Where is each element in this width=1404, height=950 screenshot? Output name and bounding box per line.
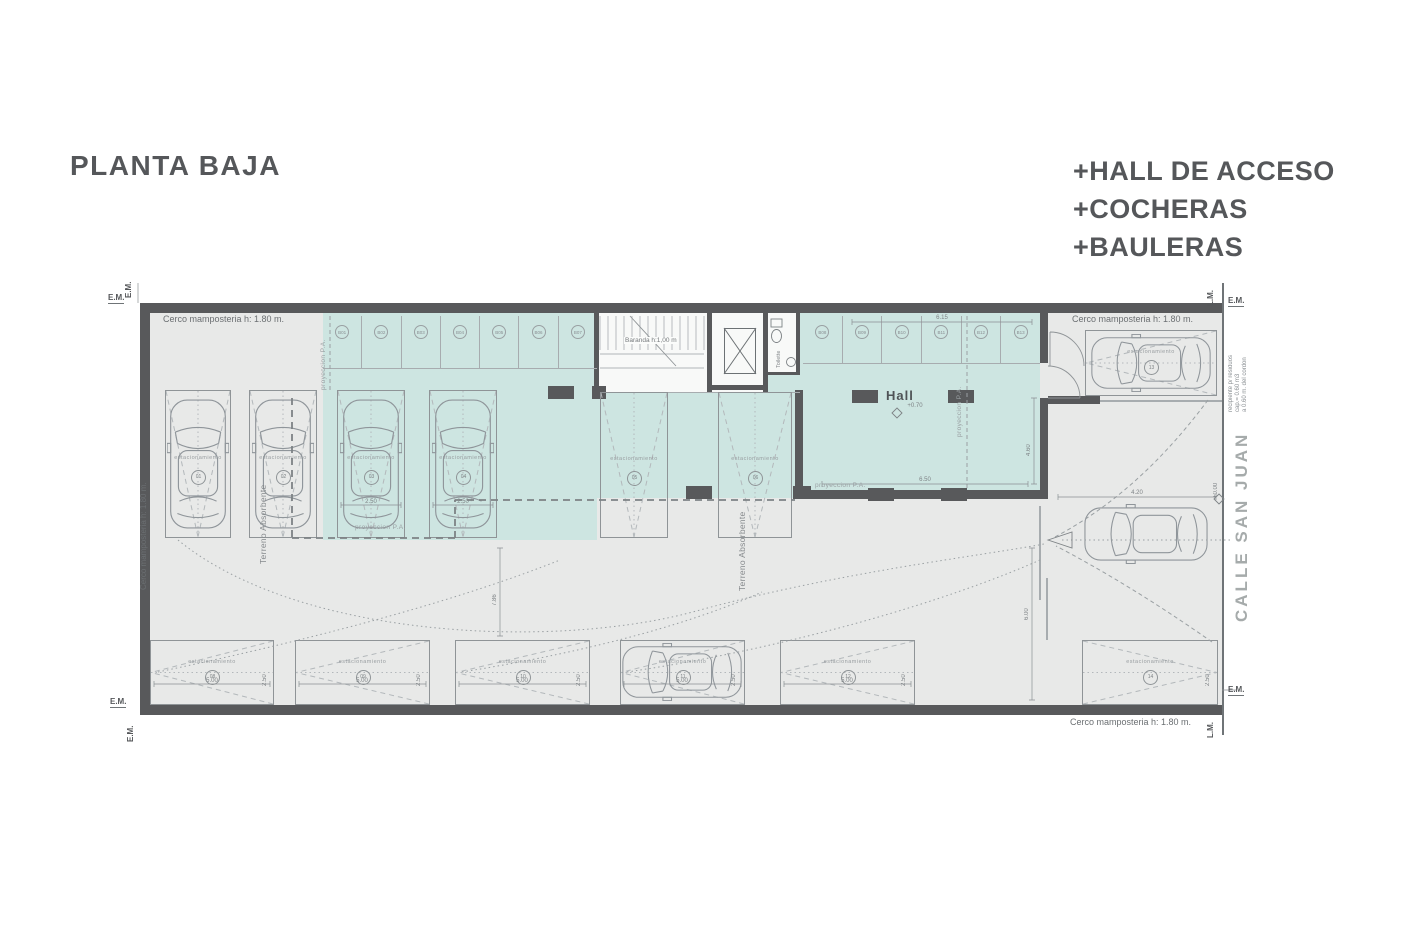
waste-bin-note: recipiente p/ residuos cap.= 0.60 m3 a 0… bbox=[1228, 312, 1249, 412]
dim-2-50-v: 2.50 bbox=[901, 658, 907, 686]
line-bauleras-left-bottom bbox=[323, 368, 597, 369]
program-item-cocheras: +COCHERAS bbox=[1073, 190, 1335, 228]
baulera-stall: B04 bbox=[441, 316, 480, 368]
lm-marker: L.M. bbox=[1206, 280, 1215, 306]
car-top-view-street bbox=[1082, 504, 1210, 564]
wall-elevator-right bbox=[763, 313, 768, 392]
em-marker: E.M. bbox=[124, 272, 133, 298]
dim-6-15: 6.15 bbox=[936, 315, 948, 321]
em-marker: E.M. bbox=[110, 697, 126, 708]
floor-plan-canvas: PLANTA BAJA +HALL DE ACCESO +COCHERAS +B… bbox=[0, 0, 1404, 950]
waste-bin-note-line: a 0.60 m. del cordon bbox=[1242, 312, 1249, 412]
baulera-number: B13 bbox=[1014, 325, 1028, 339]
baulera-number: B10 bbox=[895, 325, 909, 339]
wall-hall-right-upper bbox=[1040, 313, 1048, 363]
column bbox=[868, 488, 894, 501]
program-item-hall: +HALL DE ACCESO bbox=[1073, 152, 1335, 190]
stairs-room bbox=[599, 313, 707, 392]
dim-2-50-v: 2.50 bbox=[416, 658, 422, 686]
parking-spot-label: estacionamiento bbox=[456, 659, 589, 665]
car-top-view bbox=[620, 643, 744, 701]
program-list: +HALL DE ACCESO +COCHERAS +BAULERAS bbox=[1073, 152, 1335, 266]
baulera-stall: B11 bbox=[922, 316, 962, 363]
baulera-stall: B07 bbox=[559, 316, 597, 368]
line-garage13-bottom bbox=[1100, 400, 1222, 402]
baulera-number: B05 bbox=[492, 325, 506, 339]
dim-4-20: 4.20 bbox=[1131, 490, 1143, 496]
bauleras-right-strip: B08 B09 B10 B11 B12 B13 bbox=[803, 316, 1040, 363]
car-top-view bbox=[340, 397, 402, 531]
baulera-number: B07 bbox=[571, 325, 585, 339]
parking-spot-number: 06 bbox=[748, 471, 763, 486]
waste-bin-note-line: recipiente p/ residuos bbox=[1228, 312, 1235, 412]
proyeccion-label: proyeccion P.A. bbox=[956, 375, 963, 437]
baulera-stall: B08 bbox=[803, 316, 843, 363]
dim-4-60: 4.60 bbox=[1026, 428, 1032, 456]
dim-5-00: 5.00 bbox=[841, 678, 853, 684]
fence-label-left: Cerco mamposteria h: 1.80 m. bbox=[139, 420, 148, 590]
baulera-number: B03 bbox=[414, 325, 428, 339]
fence-label-top-left: Cerco mamposteria h: 1.80 m. bbox=[163, 314, 284, 324]
baulera-stall: B09 bbox=[843, 316, 883, 363]
parking-spot-14: estacionamiento 14 bbox=[1082, 640, 1218, 705]
dim-7-86: 7.86 bbox=[492, 578, 498, 606]
wall-hall-right-lower bbox=[1040, 398, 1048, 498]
wall-stair-right bbox=[707, 313, 712, 392]
dim-2-50-v: 2.50 bbox=[576, 658, 582, 686]
column bbox=[793, 486, 811, 499]
parking-spot-10: estacionamiento 10 bbox=[455, 640, 590, 705]
column bbox=[548, 386, 574, 399]
em-marker: E.M. bbox=[126, 716, 135, 742]
proyeccion-label: proyeccion P.A. bbox=[815, 482, 866, 489]
dim-6-50: 6.50 bbox=[919, 477, 931, 483]
baranda-label: Baranda h:1,00 m bbox=[624, 337, 678, 344]
parking-spot-05: estacionamiento 05 bbox=[600, 392, 668, 538]
toilette-room bbox=[768, 313, 800, 375]
baulera-stall: B02 bbox=[362, 316, 401, 368]
dim-5-00: 5.00 bbox=[206, 678, 218, 684]
parking-spot-label: estacionamiento bbox=[719, 456, 791, 462]
dim-2-50-v: 2.50 bbox=[731, 658, 737, 686]
wall-bottom bbox=[140, 705, 1222, 715]
baulera-number: B06 bbox=[532, 325, 546, 339]
baulera-number: B11 bbox=[934, 325, 948, 339]
street-name: CALLE SAN JUAN bbox=[1232, 462, 1252, 622]
dim-2-50: 2.50 bbox=[457, 499, 469, 505]
baulera-stall: B03 bbox=[402, 316, 441, 368]
baulera-stall: B06 bbox=[519, 316, 558, 368]
dim-5-00: 5.00 bbox=[516, 678, 528, 684]
em-marker: E.M. bbox=[1228, 296, 1244, 307]
parking-spot-06: estacionamiento 06 bbox=[718, 392, 792, 538]
baulera-number: B09 bbox=[855, 325, 869, 339]
bauleras-left-strip: B01 B02 B03 B04 B05 B06 B07 bbox=[323, 316, 597, 368]
program-item-bauleras: +BAULERAS bbox=[1073, 228, 1335, 266]
em-marker: E.M. bbox=[108, 293, 124, 304]
baulera-number: B08 bbox=[815, 325, 829, 339]
baulera-number: B01 bbox=[335, 325, 349, 339]
wall-garage13-bottom bbox=[1048, 396, 1100, 404]
parking-spot-09: estacionamiento 09 bbox=[295, 640, 430, 705]
baulera-stall: B12 bbox=[962, 316, 1002, 363]
wall-hall-bottom bbox=[795, 490, 1048, 499]
fence-label-bottom: Cerco mamposteria h: 1.80 m. bbox=[1070, 717, 1191, 727]
fence-label-top-right: Cerco mamposteria h: 1.80 m. bbox=[1072, 314, 1193, 324]
baulera-stall: B05 bbox=[480, 316, 519, 368]
wall-elevator-bottom bbox=[712, 385, 763, 390]
baulera-stall: B13 bbox=[1001, 316, 1040, 363]
terreno-absorbente-label: Terreno Absorbente bbox=[258, 468, 268, 564]
parking-spot-label: estacionamiento bbox=[1083, 659, 1217, 665]
parking-spot-12: estacionamiento 12 bbox=[780, 640, 915, 705]
baulera-number: B12 bbox=[974, 325, 988, 339]
lm-marker: L.M. bbox=[1206, 712, 1215, 738]
line-bauleras-right-bottom bbox=[803, 363, 1040, 364]
waste-bin-note-line: cap.= 0.60 m3 bbox=[1235, 312, 1242, 412]
car-top-view bbox=[167, 397, 229, 531]
parking-spot-label: estacionamiento bbox=[601, 456, 667, 462]
terreno-absorbente-label: Terreno Absorbente bbox=[737, 495, 747, 591]
dim-2-50-v: 2.50 bbox=[262, 658, 268, 686]
column bbox=[941, 488, 967, 501]
dim-6-00: 6.00 bbox=[1024, 592, 1030, 620]
column bbox=[852, 390, 878, 403]
wall-top bbox=[140, 303, 1222, 313]
baulera-stall: B01 bbox=[323, 316, 362, 368]
page-title: PLANTA BAJA bbox=[70, 150, 281, 182]
hall-label: Hall bbox=[886, 388, 914, 403]
parking-spot-number: 14 bbox=[1143, 670, 1158, 685]
parking-spot-label: estacionamiento bbox=[151, 659, 273, 665]
parking-spot-label: estacionamiento bbox=[296, 659, 429, 665]
car-top-view bbox=[1089, 334, 1213, 392]
gate-leaf-2 bbox=[1046, 578, 1048, 640]
dim-5-00: 5.00 bbox=[676, 678, 688, 684]
parking-spot-08: estacionamiento 08 bbox=[150, 640, 274, 705]
gate-leaf-1 bbox=[1039, 506, 1041, 600]
dim-2-50: 2.50 bbox=[365, 499, 377, 505]
hall-level: +0.70 bbox=[907, 403, 922, 409]
dim-2-50-v: 2.50 bbox=[1205, 658, 1211, 686]
dim-5-00: 5.00 bbox=[356, 678, 368, 684]
baulera-stall: B10 bbox=[882, 316, 922, 363]
baulera-number: B04 bbox=[453, 325, 467, 339]
car-top-view bbox=[432, 397, 494, 531]
line-lm-street bbox=[1222, 283, 1224, 735]
proyeccion-label: proyeccion P.A. bbox=[355, 524, 406, 531]
proyeccion-label: proyeccion P.A. bbox=[320, 328, 327, 390]
wall-hall-left bbox=[795, 390, 803, 498]
parking-spot-label: estacionamiento bbox=[781, 659, 914, 665]
em-marker: E.M. bbox=[1228, 685, 1244, 696]
street-level: +0.00 bbox=[1213, 470, 1219, 498]
elevator-shaft bbox=[724, 328, 756, 374]
column bbox=[686, 486, 712, 499]
toilette-label: Toilette bbox=[776, 324, 782, 368]
baulera-number: B02 bbox=[374, 325, 388, 339]
parking-spot-number: 05 bbox=[627, 471, 642, 486]
